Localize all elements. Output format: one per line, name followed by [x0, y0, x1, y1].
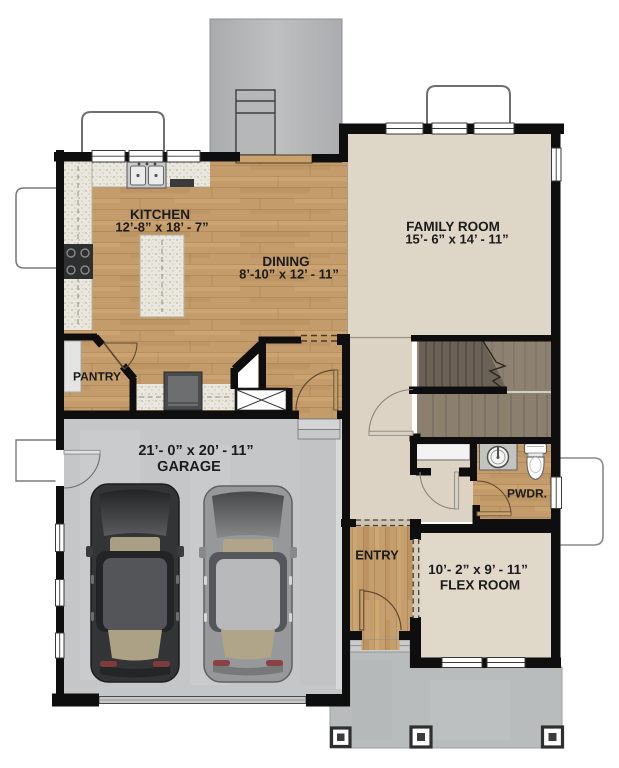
- svg-text:PWDR.: PWDR.: [507, 487, 547, 501]
- svg-text:21’- 0” x 20’ - 11”: 21’- 0” x 20’ - 11”: [138, 443, 253, 459]
- svg-text:ENTRY: ENTRY: [355, 548, 399, 563]
- svg-text:15’- 6” x 14’ - 11”: 15’- 6” x 14’ - 11”: [405, 232, 508, 247]
- svg-text:8’-10” x 12’ - 11”: 8’-10” x 12’ - 11”: [239, 267, 339, 282]
- svg-text:GARAGE: GARAGE: [157, 459, 221, 475]
- svg-text:12’-8” x 18’ - 7”: 12’-8” x 18’ - 7”: [115, 220, 208, 235]
- svg-text:PANTRY: PANTRY: [73, 370, 121, 384]
- svg-text:FLEX ROOM: FLEX ROOM: [440, 578, 520, 593]
- svg-text:10’- 2” x 9’ - 11”: 10’- 2” x 9’ - 11”: [428, 562, 528, 577]
